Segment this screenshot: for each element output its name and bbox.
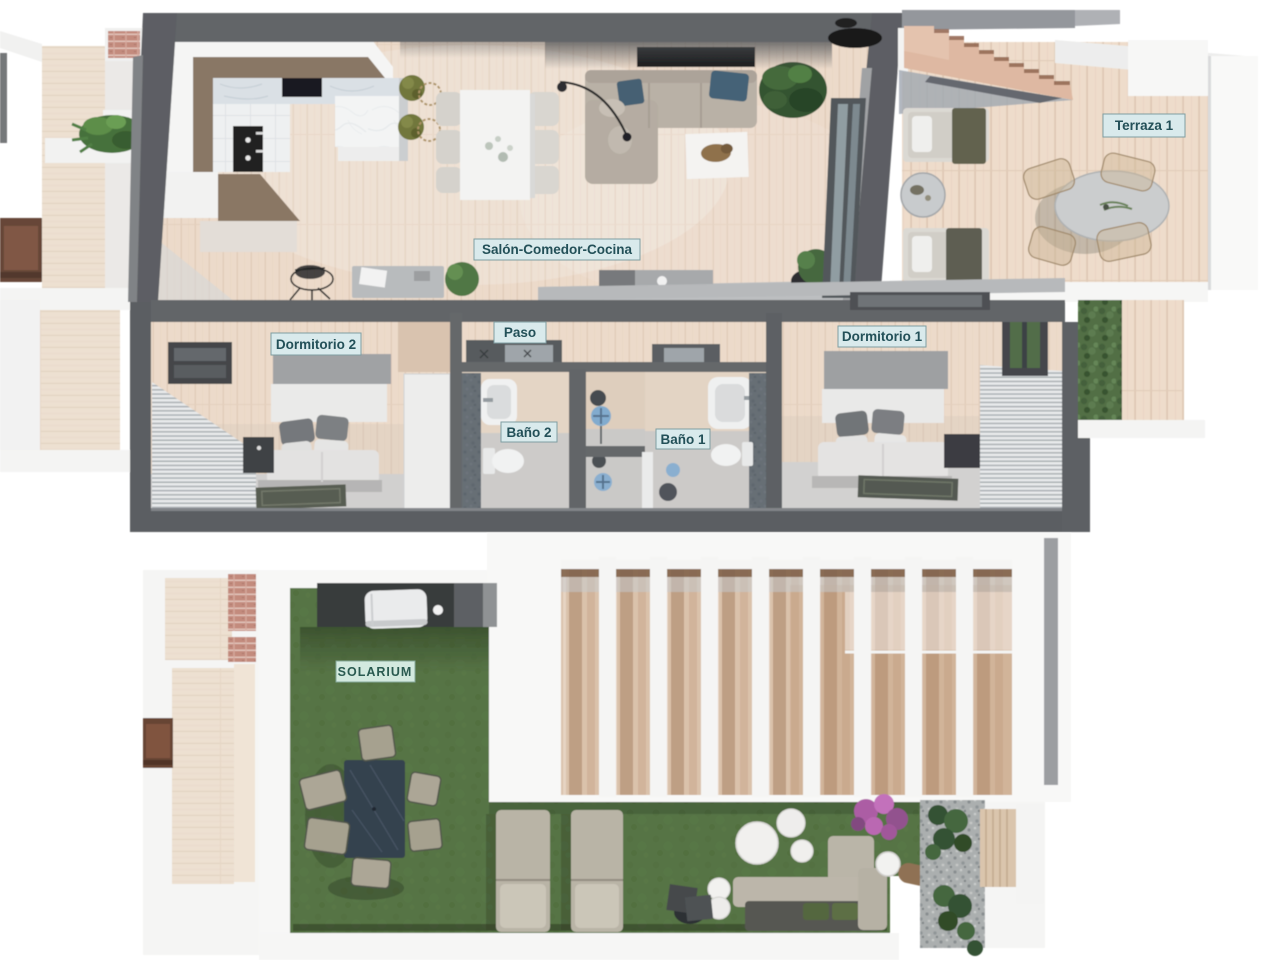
svg-text:SOLARIUM: SOLARIUM — [338, 665, 413, 679]
svg-text:Terraza 1: Terraza 1 — [1115, 118, 1174, 133]
svg-text:Baño 1: Baño 1 — [660, 432, 706, 447]
svg-text:Baño 2: Baño 2 — [506, 425, 551, 440]
svg-text:Dormitorio 1: Dormitorio 1 — [842, 329, 923, 344]
svg-text:Paso: Paso — [504, 325, 536, 340]
svg-text:Salón-Comedor-Cocina: Salón-Comedor-Cocina — [482, 242, 633, 257]
svg-text:Dormitorio 2: Dormitorio 2 — [276, 337, 356, 352]
